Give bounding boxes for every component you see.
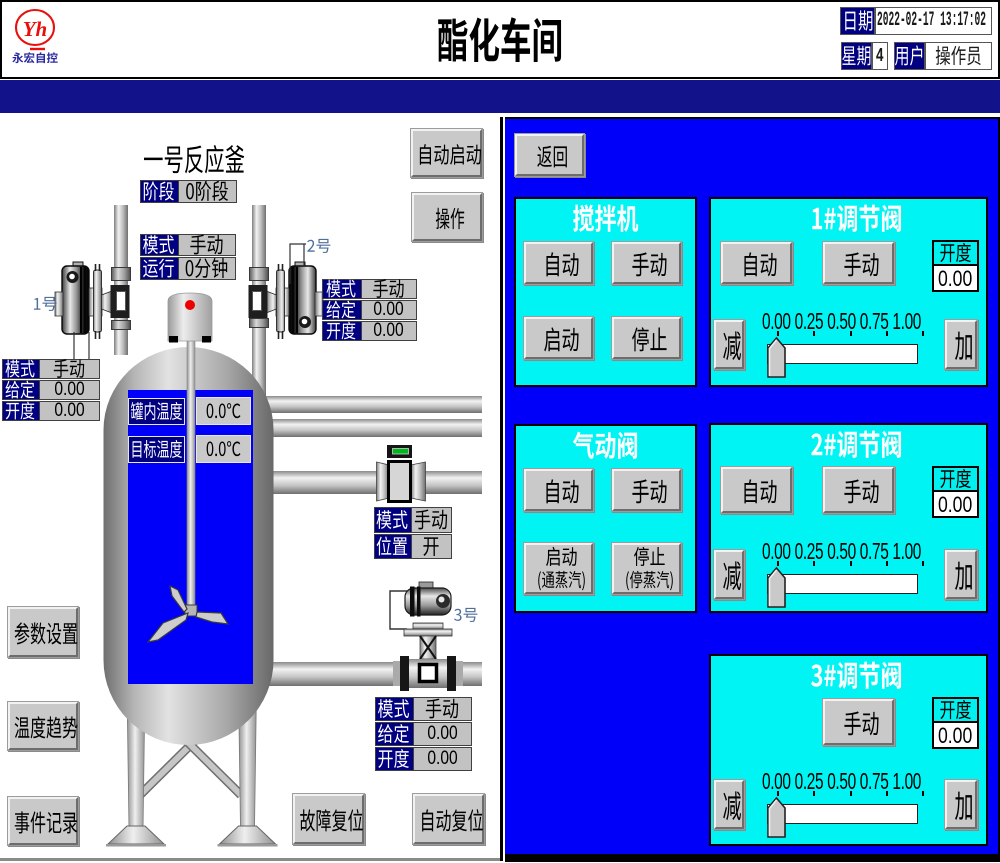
svg-text:Yh: Yh <box>23 17 48 41</box>
